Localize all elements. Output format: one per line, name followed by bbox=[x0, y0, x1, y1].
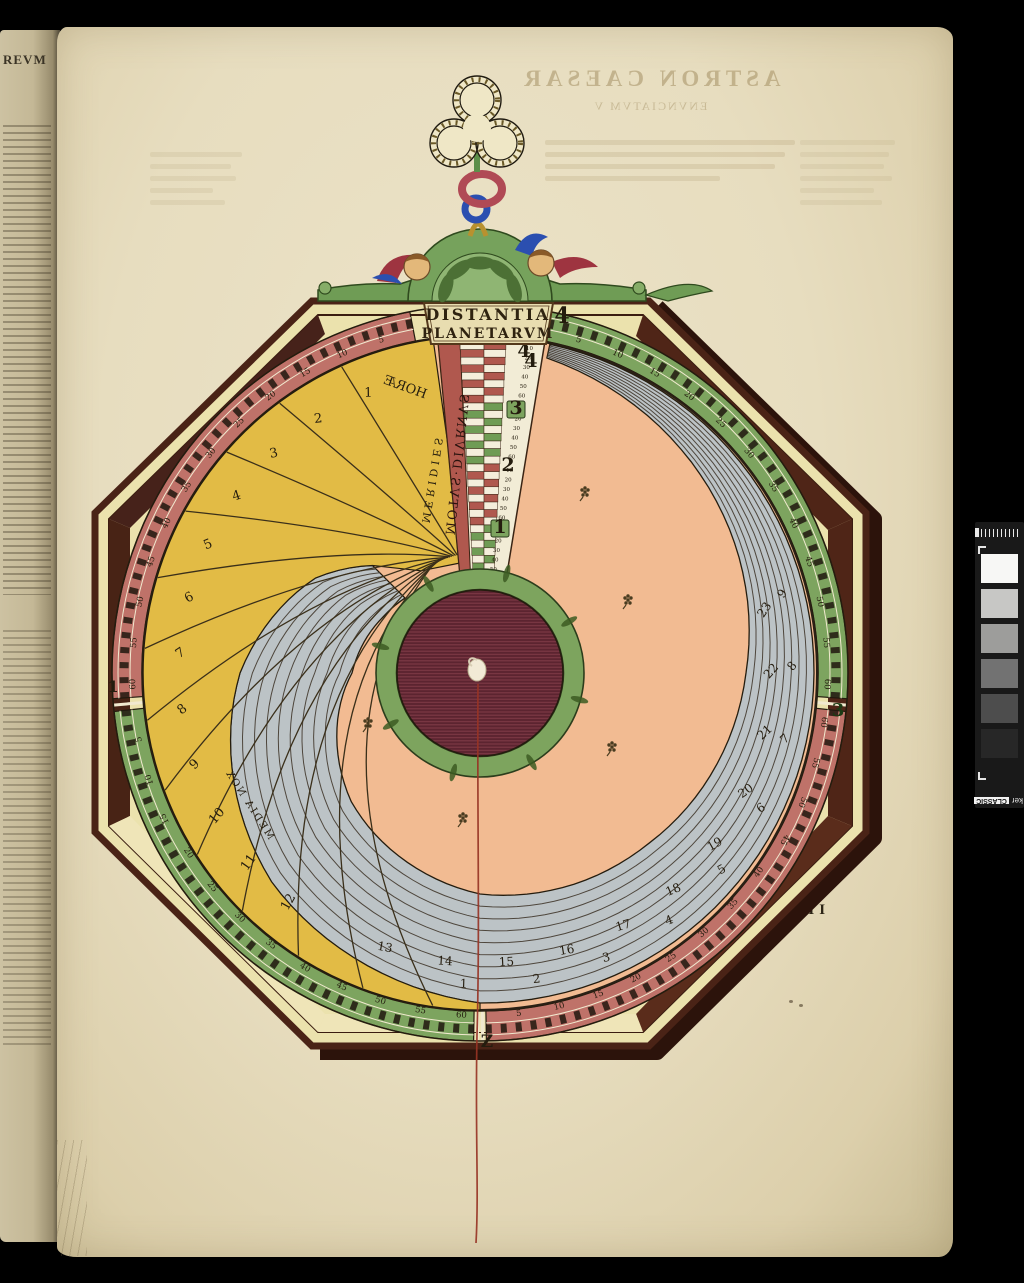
facing-page: REVM bbox=[0, 30, 60, 1242]
calibration-label: ker CLASSIC bbox=[977, 796, 1023, 805]
ink-speck bbox=[799, 1004, 803, 1007]
crop-mark bbox=[978, 546, 986, 554]
calibration-chip: CLASSIC bbox=[974, 797, 1009, 804]
gray-patch bbox=[981, 624, 1018, 653]
gray-patch bbox=[981, 694, 1018, 723]
calibration-strip: ker CLASSIC bbox=[975, 522, 1024, 808]
ruler-ticks bbox=[981, 529, 1018, 537]
gray-patch bbox=[981, 589, 1018, 618]
calibration-brand-fragment: ker bbox=[1012, 796, 1023, 805]
gray-patch bbox=[981, 729, 1018, 758]
grayscale-patches bbox=[975, 554, 1024, 764]
facing-page-text-block bbox=[3, 630, 51, 1050]
gray-patch bbox=[981, 659, 1018, 688]
quire-signature: G II bbox=[783, 902, 830, 919]
gray-patch bbox=[981, 554, 1018, 583]
facing-page-text-block bbox=[3, 125, 51, 595]
crop-mark bbox=[978, 772, 986, 780]
book-page bbox=[57, 27, 953, 1257]
ink-speck bbox=[789, 1000, 793, 1003]
ruler-block bbox=[975, 528, 979, 537]
facing-page-heading: REVM bbox=[3, 52, 47, 68]
photographed-book-page: REVM ASTRON CAESAR ENVNCIATVM V G II ker… bbox=[0, 0, 1024, 1283]
page-stack-edges bbox=[57, 1140, 87, 1256]
